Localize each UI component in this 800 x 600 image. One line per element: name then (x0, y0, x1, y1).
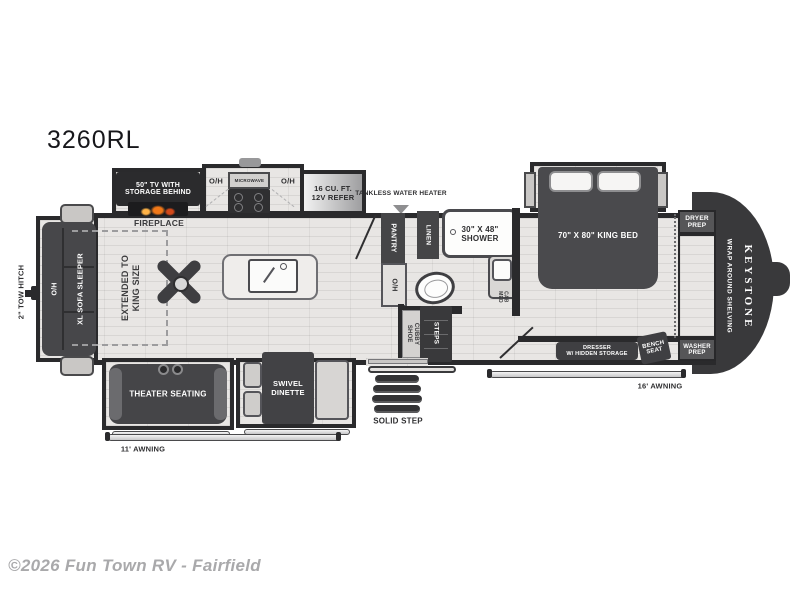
sofa-armrest-top (60, 204, 94, 224)
closet-floor (678, 234, 716, 338)
med-cab-label: MED CAB (497, 291, 508, 303)
range-stove (228, 189, 270, 213)
extension-label: EXTENDED TO KING SIZE (120, 255, 142, 321)
dryer-prep: DRYER PREP (678, 210, 716, 234)
page-title: 3260RL (47, 126, 141, 155)
dinette-chair (243, 391, 262, 417)
nightstand-left (524, 172, 536, 208)
dresser: DRESSER W/ HIDDEN STORAGE (556, 342, 638, 360)
rear-hitch-stub (25, 290, 31, 297)
awning-cap (336, 432, 341, 441)
island-sink (248, 259, 298, 293)
sink-faucet-base (280, 263, 287, 270)
solid-step-tread (374, 405, 420, 413)
step-rail (368, 366, 456, 373)
awning-cap (487, 369, 492, 378)
wrap-shelving-label: WRAP AROUND SHELVING (726, 239, 733, 333)
awning-cap (681, 369, 686, 378)
solid-step-label: SOLID STEP (373, 417, 423, 426)
shoe-cubby-label: SHOE CUBBY (405, 323, 419, 345)
bath-sink (492, 259, 512, 281)
dinette-table: SWIVEL DINETTE (262, 352, 314, 424)
overhead-cabinet-right-label: O/H (281, 177, 295, 186)
sofa-oh-divider (62, 228, 64, 350)
solid-step-tread (372, 395, 422, 403)
brand-label: KEYSTONE (742, 245, 754, 330)
tow-hitch-label: 2" TOW HITCH (17, 265, 26, 320)
sofa-oh-label: O/H (52, 282, 59, 295)
shower-head-icon (450, 229, 456, 235)
copyright-watermark: ©2026 Fun Town RV - Fairfield (8, 556, 261, 576)
pantry-label: PANTRY (390, 223, 397, 252)
linen-label: LINEN (425, 225, 432, 246)
awning-bar-left (108, 434, 340, 441)
steps-label: STEPS (433, 322, 440, 344)
awning-cap (105, 432, 110, 441)
solid-step-tread (375, 375, 419, 383)
fireplace-icon (128, 202, 188, 216)
microwave-vent (239, 158, 261, 167)
cupholder-icon (172, 364, 183, 375)
tv-cabinet: 50" TV WITH STORAGE BEHIND (116, 172, 200, 206)
fireplace-label: FIREPLACE (134, 218, 184, 228)
theater-armrest-left (109, 368, 122, 420)
solid-step-tread (373, 385, 421, 393)
counter-oh-label: O/H (391, 278, 398, 291)
theater-label: THEATER SEATING (129, 390, 206, 399)
pillow-left (549, 171, 593, 192)
bath-wall-right (512, 208, 520, 316)
dinette-bench (315, 360, 349, 420)
ceiling-fan-icon (151, 254, 207, 310)
floorplan-page: 3260RL 2" TOW HITCH O/H XL SOFA SLEEPER … (0, 0, 800, 600)
cupholder-icon (158, 364, 169, 375)
king-bed-label: 70" X 80" KING BED (558, 231, 638, 241)
overhead-cabinet-left-label: O/H (209, 177, 223, 186)
entry-threshold (368, 359, 428, 364)
closet-divider-dotted (674, 214, 676, 338)
tankless-heater-label: TANKLESS WATER HEATER (355, 190, 447, 198)
awning-left-label: 11' AWNING (121, 445, 165, 454)
awning-right-label: 16' AWNING (638, 382, 683, 391)
washer-prep: WASHER PREP (678, 338, 716, 361)
kingpin-hitch (754, 262, 790, 296)
pillow-right (597, 171, 641, 192)
dinette-chair (243, 362, 262, 388)
microwave: MICROWAVE (228, 172, 270, 189)
awning-bar-right (490, 371, 686, 378)
sofa-armrest-bottom (60, 356, 94, 376)
theater-armrest-right (214, 368, 227, 420)
